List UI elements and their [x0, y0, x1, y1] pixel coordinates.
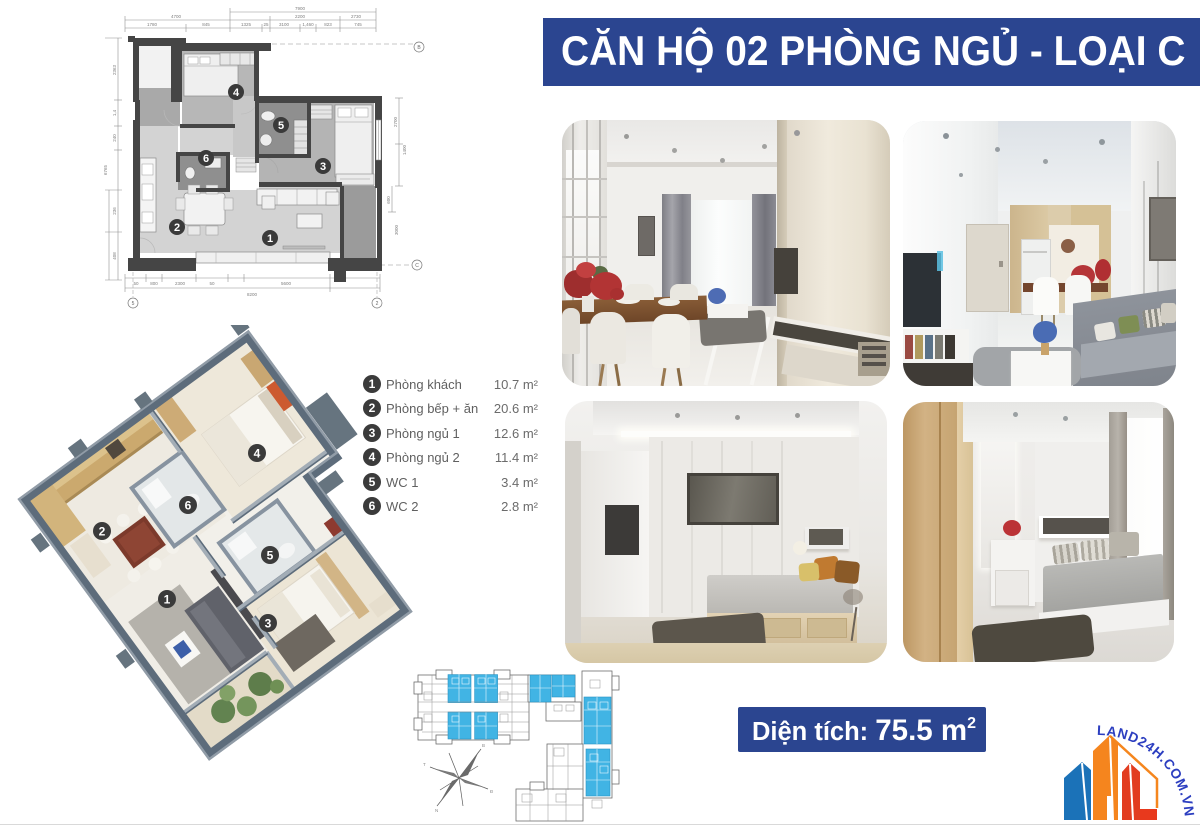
svg-text:2: 2: [376, 301, 379, 307]
svg-text:4: 4: [254, 447, 261, 461]
svg-text:7900: 7900: [295, 6, 306, 11]
svg-text:600: 600: [386, 196, 391, 204]
svg-text:408: 408: [112, 252, 117, 260]
svg-text:2300: 2300: [175, 281, 186, 286]
svg-text:6: 6: [203, 153, 209, 165]
svg-text:5: 5: [278, 120, 284, 132]
svg-text:5: 5: [267, 549, 274, 563]
svg-text:2363: 2363: [112, 64, 117, 75]
svg-text:C: C: [415, 263, 419, 269]
svg-text:6: 6: [185, 499, 192, 513]
svg-text:3100: 3100: [279, 22, 290, 27]
svg-text:845: 845: [202, 22, 210, 27]
svg-text:B: B: [482, 743, 485, 748]
svg-text:2730: 2730: [351, 14, 362, 19]
svg-text:3000: 3000: [394, 224, 399, 235]
svg-text:2: 2: [99, 525, 106, 539]
svg-text:50: 50: [209, 281, 215, 286]
svg-text:745: 745: [354, 22, 362, 27]
svg-text:1,4: 1,4: [112, 109, 117, 116]
svg-text:823: 823: [324, 22, 332, 27]
svg-text:25: 25: [263, 22, 269, 27]
svg-text:6765: 6765: [103, 164, 108, 175]
svg-text:5600: 5600: [281, 281, 292, 286]
svg-text:2: 2: [174, 222, 180, 234]
svg-text:Đ: Đ: [490, 789, 494, 794]
svg-text:N: N: [435, 808, 438, 813]
svg-text:800: 800: [150, 281, 158, 286]
svg-text:50: 50: [133, 281, 139, 286]
svg-text:8200: 8200: [247, 292, 258, 297]
svg-text:1: 1: [164, 593, 171, 607]
svg-text:3: 3: [265, 617, 272, 631]
svg-text:1400: 1400: [402, 144, 407, 155]
svg-text:3: 3: [320, 161, 326, 173]
svg-text:1: 1: [267, 233, 273, 245]
svg-text:1780: 1780: [147, 22, 158, 27]
svg-text:236: 236: [112, 207, 117, 215]
svg-text:4700: 4700: [171, 14, 182, 19]
svg-text:2200: 2200: [295, 14, 306, 19]
svg-text:5: 5: [132, 301, 135, 307]
svg-text:T: T: [423, 762, 426, 767]
svg-text:2700: 2700: [393, 116, 398, 127]
svg-text:240: 240: [112, 134, 117, 142]
svg-text:4: 4: [233, 87, 240, 99]
svg-text:1325: 1325: [241, 22, 252, 27]
svg-text:1,460: 1,460: [302, 22, 314, 27]
